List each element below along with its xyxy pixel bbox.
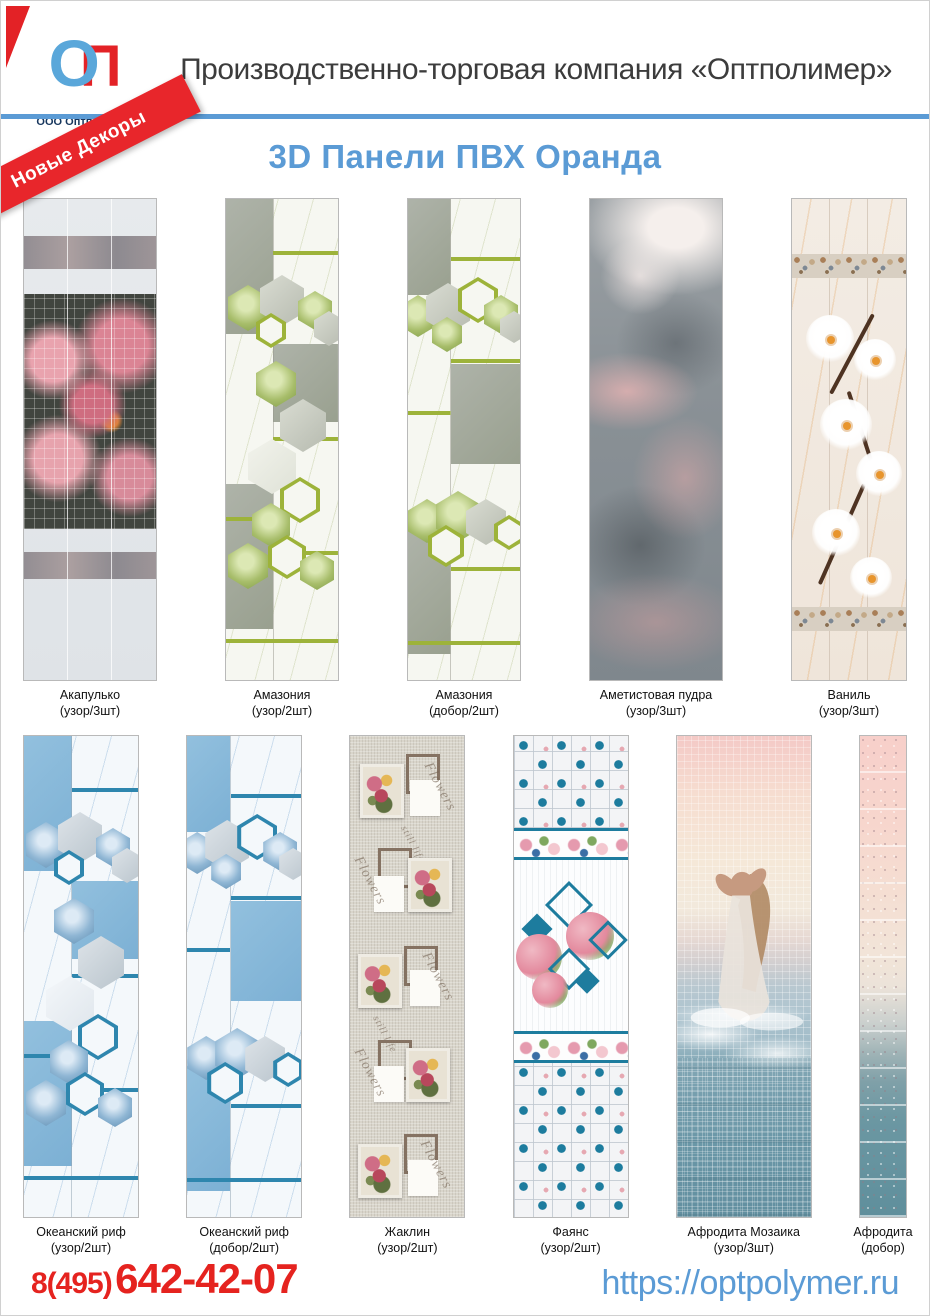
flower-painting xyxy=(360,764,404,818)
hexagon-decor xyxy=(228,543,268,589)
company-title: Производственно-торговая компания «Оптпо… xyxy=(151,53,921,87)
phone-prefix: 8(495) xyxy=(31,1267,112,1300)
panel-spec: (узор/3шт) xyxy=(600,703,712,719)
panel-spec: (узор/3шт) xyxy=(819,703,879,719)
orchid-flower xyxy=(820,399,872,451)
panel-image-akapulko[interactable] xyxy=(23,198,157,681)
tile-zone xyxy=(514,736,628,828)
panel-card-amazonia-uzor: Амазония (узор/2шт) xyxy=(225,198,339,721)
tile-zone xyxy=(514,1063,628,1218)
rose-cluster-decor xyxy=(532,972,568,1008)
orchid-flower xyxy=(856,451,902,497)
panel-name: Амазония xyxy=(429,687,499,703)
flower-painting xyxy=(408,858,452,912)
panel-caption: Афродита (добор) xyxy=(853,1224,912,1258)
panel-name: Ваниль xyxy=(819,687,879,703)
panel-caption: Акапулько (узор/3шт) xyxy=(60,687,120,721)
panel-card-vanil: Ваниль (узор/3шт) xyxy=(791,198,907,721)
orchid-flower xyxy=(812,509,860,557)
panel-name: Океанский риф xyxy=(199,1224,289,1240)
website-link[interactable]: https://optpolymer.ru xyxy=(601,1264,899,1303)
panel-card-reef-uzor: Океанский риф (узор/2шт) xyxy=(23,735,139,1258)
floral-border-band xyxy=(514,1031,628,1063)
panel-card-akapulko: Акапулько (узор/3шт) xyxy=(23,198,157,721)
panel-image-fayans[interactable] xyxy=(513,735,629,1218)
panel-card-jacqueline: Flowers still life Flowers Flowers still… xyxy=(349,735,465,1258)
panel-image-amazonia-uzor[interactable] xyxy=(225,198,339,681)
panel-caption: Афродита Мозаика (узор/3шт) xyxy=(688,1224,800,1258)
page-footer: 8(495) 642-42-07 https://optpolymer.ru xyxy=(31,1255,899,1303)
panel-name: Аметистовая пудра xyxy=(600,687,712,703)
orchid-flower xyxy=(850,557,892,599)
pebble-band xyxy=(792,254,906,278)
panel-spec: (узор/3шт) xyxy=(60,703,120,719)
panel-image-aphrodite-dobor[interactable] xyxy=(859,735,907,1218)
panel-caption: Океанский риф (узор/2шт) xyxy=(36,1224,126,1258)
panel-caption: Фаянс (узор/2шт) xyxy=(540,1224,600,1258)
orchid-flower xyxy=(806,315,854,363)
panel-spec: (добор/2шт) xyxy=(429,703,499,719)
mosaic-bottom-decor xyxy=(677,1058,811,1217)
panel-card-reef-dobor: Океанский риф (добор/2шт) xyxy=(186,735,302,1258)
panels-row-2: Океанский риф (узор/2шт) xyxy=(23,735,907,1258)
phone-number[interactable]: 8(495) 642-42-07 xyxy=(31,1255,298,1303)
center-zone xyxy=(514,860,628,1031)
panel-image-reef-dobor[interactable] xyxy=(186,735,302,1218)
hexagon-decor xyxy=(78,936,124,989)
hexagon-decor xyxy=(280,399,326,452)
panel-caption: Аметистовая пудра (узор/3шт) xyxy=(600,687,712,721)
panel-caption: Океанский риф (добор/2шт) xyxy=(199,1224,289,1258)
panel-image-amethyst[interactable] xyxy=(589,198,723,681)
hexagon-decor xyxy=(26,1080,66,1126)
panel-image-amazonia-dobor[interactable] xyxy=(407,198,521,681)
flower-painting xyxy=(358,1144,402,1198)
panel-name: Фаянс xyxy=(540,1224,600,1240)
panel-image-vanil[interactable] xyxy=(791,198,907,681)
panels-grid: Акапулько (узор/3шт) xyxy=(23,198,907,1258)
panel-card-amethyst: Аметистовая пудра (узор/3шт) xyxy=(589,198,723,721)
panel-card-fayans: Фаянс (узор/2шт) xyxy=(513,735,629,1258)
hexagon-decor xyxy=(54,898,94,944)
panel-name: Жаклин xyxy=(377,1224,437,1240)
panel-name: Афродита xyxy=(853,1224,912,1240)
panel-image-aphrodite-mosaic[interactable] xyxy=(676,735,812,1218)
panel-spec: (узор/2шт) xyxy=(252,703,312,719)
orchid-flower xyxy=(854,339,896,381)
panel-caption: Ваниль (узор/3шт) xyxy=(819,687,879,721)
panel-caption: Жаклин (узор/2шт) xyxy=(377,1224,437,1258)
page-title: 3D Панели ПВХ Оранда xyxy=(1,138,929,176)
panel-caption: Амазония (добор/2шт) xyxy=(429,687,499,721)
panel-name: Амазония xyxy=(252,687,312,703)
flower-painting xyxy=(358,954,402,1008)
floral-border-band xyxy=(514,828,628,860)
panel-name: Акапулько xyxy=(60,687,120,703)
panel-card-aphrodite-mosaic: Афродита Мозаика (узор/3шт) xyxy=(676,735,812,1258)
panel-caption: Амазония (узор/2шт) xyxy=(252,687,312,721)
pebble-band xyxy=(792,607,906,631)
panel-card-amazonia-dobor: Амазония (добор/2шт) xyxy=(407,198,521,721)
woman-silhouette xyxy=(677,851,811,1082)
catalog-page: ОП ООО Оптполимер Производственно-торгов… xyxy=(0,0,930,1316)
phone-main: 642-42-07 xyxy=(115,1255,297,1302)
flower-painting xyxy=(406,1048,450,1102)
hexagon-decor xyxy=(256,361,296,407)
panels-row-1: Акапулько (узор/3шт) xyxy=(23,198,907,721)
panel-card-aphrodite-dobor: Афродита (добор) xyxy=(859,735,907,1258)
panel-name: Океанский риф xyxy=(36,1224,126,1240)
logo-letter-o: О xyxy=(48,26,99,100)
panel-image-jacqueline[interactable]: Flowers still life Flowers Flowers still… xyxy=(349,735,465,1218)
panel-name: Афродита Мозаика xyxy=(688,1224,800,1240)
panel-image-reef-uzor[interactable] xyxy=(23,735,139,1218)
